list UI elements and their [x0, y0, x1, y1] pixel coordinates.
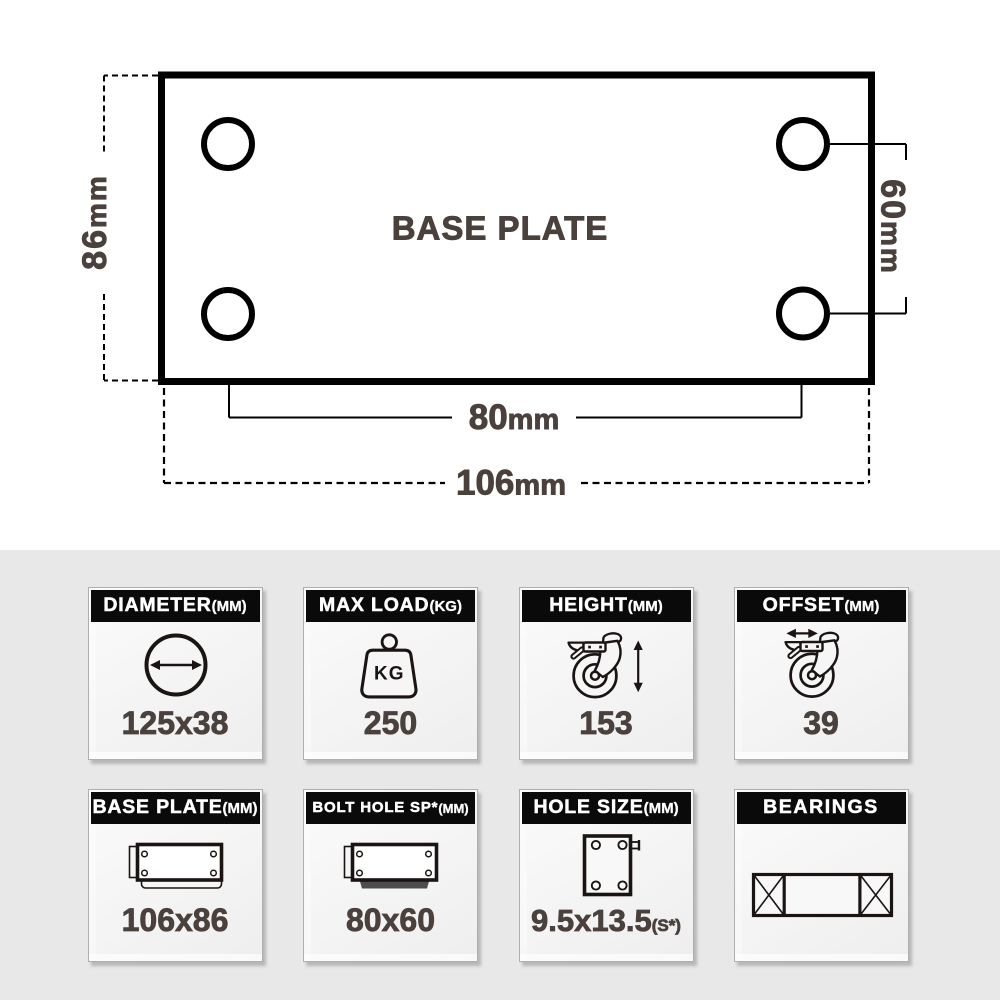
svg-text:BASE PLATE: BASE PLATE — [392, 210, 609, 247]
svg-text:60mm: 60mm — [874, 179, 912, 275]
svg-text:106mm: 106mm — [456, 464, 566, 503]
svg-text:80mm: 80mm — [469, 398, 560, 437]
svg-text:KG: KG — [374, 663, 405, 684]
svg-text:86mm: 86mm — [76, 174, 114, 270]
